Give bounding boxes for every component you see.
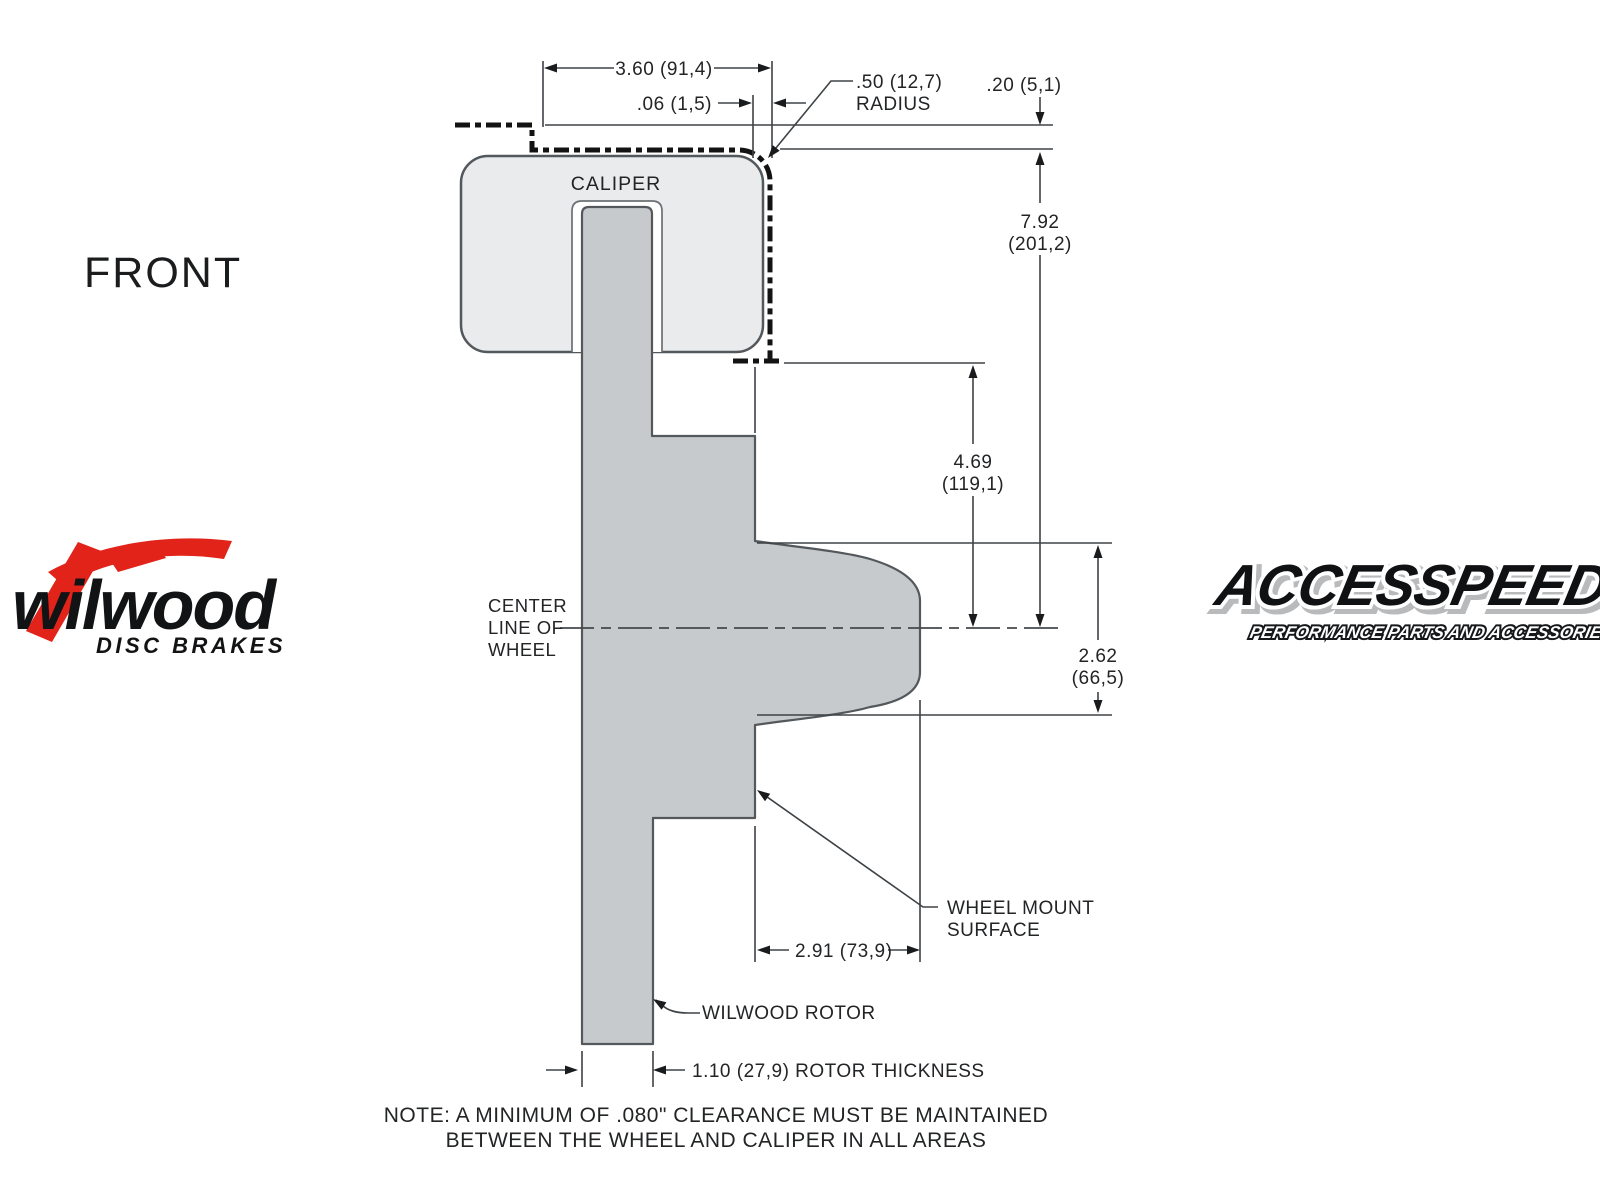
brake-section-diagram: FRONT wilwood DISC BRAKES ACCESSPEED ACC…	[0, 0, 1600, 1200]
dim-hat-depth-mm: (66,5)	[1072, 668, 1125, 689]
wilwood-logo: wilwood DISC BRAKES	[12, 538, 286, 658]
caliper-label: CALIPER	[571, 173, 661, 195]
dim-caliper-to-center-mm: (201,2)	[1008, 234, 1072, 255]
center-line-label-2: LINE OF	[488, 617, 563, 638]
dim-radius-value: .50 (12,7)	[856, 72, 942, 93]
dim-wheel-step: .20 (5,1)	[986, 75, 1061, 96]
accesspeed-wordmark: ACCESSPEED	[1208, 554, 1600, 618]
wilwood-tagline: DISC BRAKES	[96, 633, 286, 658]
dim-clearance-top: .06 (1,5)	[637, 94, 712, 115]
dim-rotor-thickness: 1.10 (27,9) ROTOR THICKNESS	[692, 1061, 985, 1082]
dim-flange-to-center-mm: (119,1)	[942, 474, 1004, 495]
note-line-1: NOTE: A MINIMUM OF .080" CLEARANCE MUST …	[384, 1104, 1048, 1127]
center-line-label-3: WHEEL	[488, 639, 556, 660]
accesspeed-tagline: PERFORMANCE PARTS AND ACCESSORIES	[1248, 622, 1600, 642]
dim-caliper-width: 3.60 (91,4)	[615, 59, 712, 80]
dim-caliper-to-center-in: 7.92	[1021, 212, 1060, 233]
center-line-label-1: CENTER	[488, 595, 567, 616]
drawing-canvas: FRONT wilwood DISC BRAKES ACCESSPEED ACC…	[0, 0, 1600, 1200]
dim-hat-depth-in: 2.62	[1079, 646, 1118, 667]
accesspeed-logo: ACCESSPEED ACCESSPEED ACCESSPEED PERFORM…	[1207, 554, 1600, 642]
wheel-mount-label-1: WHEEL MOUNT	[947, 898, 1094, 919]
front-label: FRONT	[84, 249, 242, 297]
dim-radius-label: RADIUS	[856, 94, 931, 115]
note-line-2: BETWEEN THE WHEEL AND CALIPER IN ALL ARE…	[446, 1129, 987, 1152]
wheel-mount-label-2: SURFACE	[947, 920, 1040, 941]
dim-hat-width: 2.91 (73,9)	[795, 941, 892, 962]
wilwood-rotor-label: WILWOOD ROTOR	[702, 1003, 876, 1024]
dim-flange-to-center-in: 4.69	[954, 452, 993, 473]
